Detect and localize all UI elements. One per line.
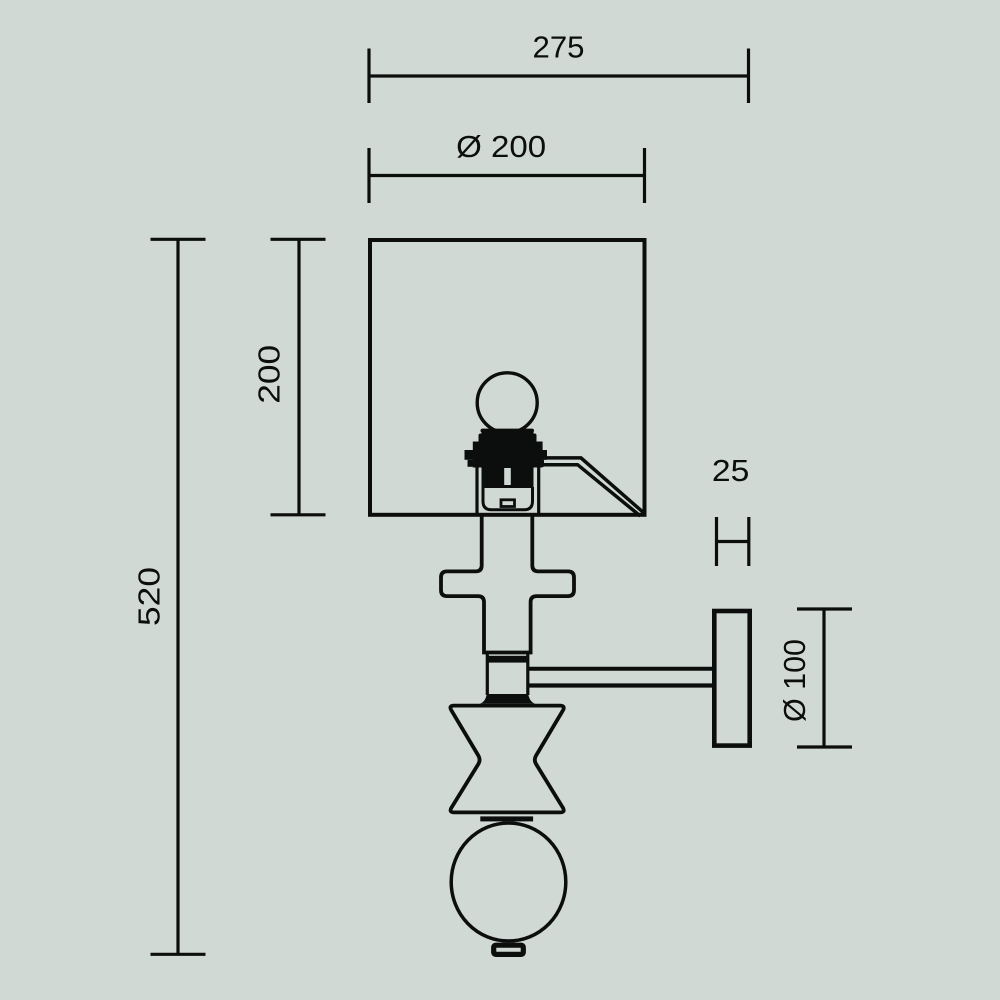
- svg-text:25: 25: [712, 453, 750, 488]
- svg-text:520: 520: [132, 567, 167, 626]
- svg-text:Ø 100: Ø 100: [777, 639, 812, 722]
- svg-text:275: 275: [533, 29, 585, 64]
- svg-text:Ø 200: Ø 200: [456, 129, 546, 164]
- svg-text:200: 200: [252, 345, 287, 404]
